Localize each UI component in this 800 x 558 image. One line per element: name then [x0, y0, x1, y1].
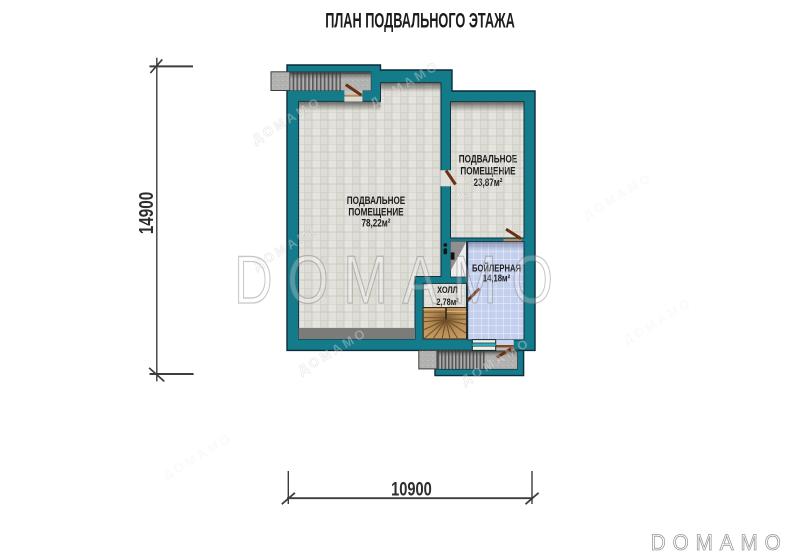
- svg-text:DOMAMO: DOMAMO: [651, 529, 788, 555]
- svg-text:10900: 10900: [391, 478, 432, 501]
- svg-text:14900: 14900: [135, 192, 158, 234]
- svg-text:ПЛАН ПОДВАЛЬНОГО ЭТАЖА: ПЛАН ПОДВАЛЬНОГО ЭТАЖА: [325, 8, 515, 32]
- svg-text:78,22м²: 78,22м²: [361, 217, 391, 230]
